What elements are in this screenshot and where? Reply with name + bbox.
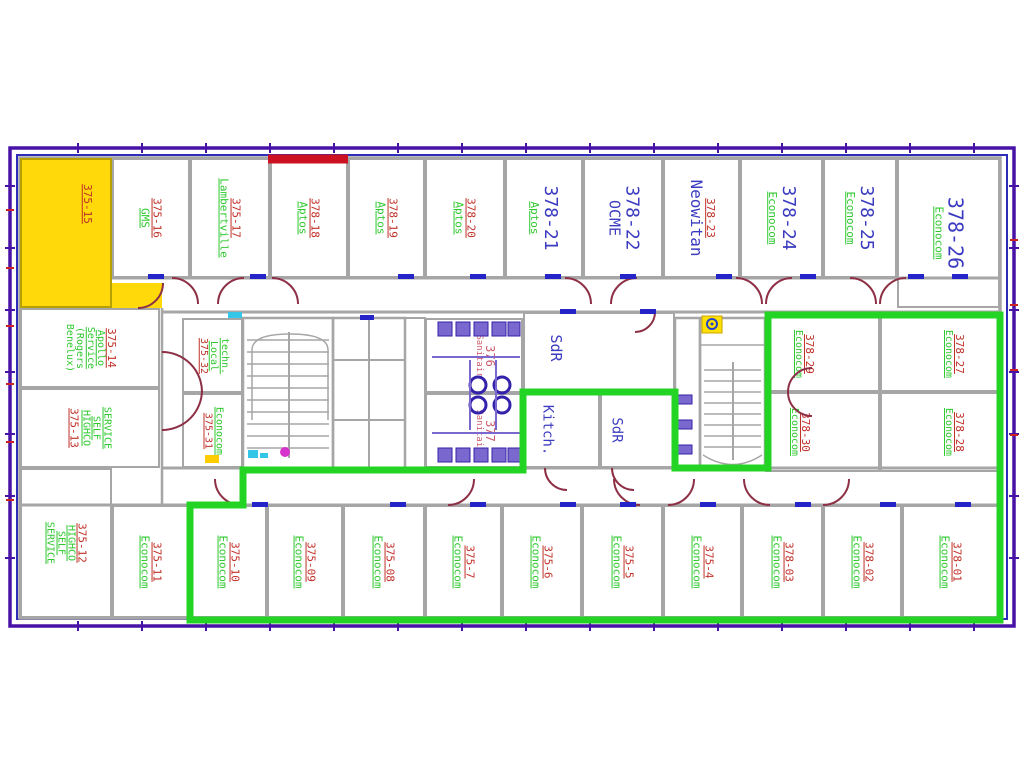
- room-label: 375-17Lambertville: [218, 178, 241, 257]
- room-378-19: 378-19Aptos: [348, 158, 425, 278]
- room-kitch: Kitch.: [523, 392, 600, 468]
- room-label: 378-20Aptos: [453, 198, 476, 238]
- room-label: 375-4Econocom: [691, 535, 714, 588]
- room-378-22: 378-22OCME: [583, 158, 663, 278]
- room-378-03: 378-03Econocom: [742, 505, 823, 618]
- room-378-26: 378-26Econocom: [897, 158, 1000, 308]
- room-375-15: 375-15: [20, 158, 112, 308]
- room-label: SdR: [609, 417, 624, 442]
- room-label: 375-12HIGHCOSELFSERVICE: [44, 522, 87, 564]
- room-375-16: 375-16GMS: [112, 158, 190, 278]
- room-375-5: 375-5Econocom: [582, 505, 663, 618]
- room-375-15b: [112, 283, 162, 308]
- room-label: 378-25Econocom: [845, 185, 875, 250]
- room-label: 375-08Econocom: [372, 535, 395, 588]
- room-sdr-2: SdR: [600, 392, 675, 468]
- room-label: 378-29Econocom: [793, 329, 815, 377]
- room-378-29: 378-29Econocom: [765, 315, 880, 392]
- room-label: 378-23Neowitan: [687, 179, 715, 256]
- room-label: 375-5Econocom: [611, 535, 634, 588]
- room-label: 378-21Aptos: [529, 185, 559, 250]
- room-label: 375-11Econocom: [139, 535, 162, 588]
- room-375-7: 375-7Econocom: [425, 505, 502, 618]
- room-label: 378-26Econocom: [932, 197, 965, 269]
- room-label: SdR: [547, 335, 563, 362]
- room-label: 375-15: [81, 184, 93, 224]
- room-label: 378-28Econocom: [943, 408, 965, 456]
- room-label: 375-7Econocom: [452, 535, 475, 588]
- room-label: 378-19Aptos: [375, 198, 398, 238]
- room-378-25: 378-25Econocom: [823, 158, 897, 278]
- room-378-18: 378-18Aptos: [270, 158, 348, 278]
- room-375-12: 375-12HIGHCOSELFSERVICE: [20, 468, 112, 618]
- room-label: 378-03Econocom: [771, 535, 794, 588]
- room-378-28: 378-28Econocom: [880, 392, 1000, 472]
- room-label: 378-27Econocom: [943, 329, 965, 377]
- rooms-layer: 375-15375-16GMS375-17Lambertville378-18A…: [0, 0, 1024, 768]
- room-label: techn.Local375-32: [197, 337, 229, 373]
- room-375-4: 375-4Econocom: [663, 505, 742, 618]
- room-375-17: 375-17Lambertville: [190, 158, 270, 278]
- room-378-21: 378-21Aptos: [505, 158, 583, 278]
- room-375-31: Econocom375-31: [182, 393, 243, 468]
- room-378-02: 378-02Econocom: [823, 505, 902, 618]
- room-label: 375-10Econocom: [217, 535, 240, 588]
- room-label: SERVICESELFHIGHCO375-13: [68, 407, 111, 449]
- room-377: 377Sanitair: [425, 393, 523, 468]
- room-label: 377Sanitair: [474, 409, 496, 452]
- room-378-27: 378-27Econocom: [880, 315, 1000, 392]
- room-label: 378-24Econocom: [766, 185, 796, 250]
- room-375-08: 375-08Econocom: [343, 505, 425, 618]
- room-label: 378-22OCME: [606, 185, 641, 250]
- room-375-32: techn.Local375-32: [182, 318, 243, 393]
- room-376: 376Sanitair: [425, 318, 523, 393]
- room-label: Kitch.: [540, 405, 555, 456]
- room-label: Econocom375-31: [202, 406, 223, 454]
- room-label: 375-14ApolloService(RogersBenelux): [63, 324, 117, 372]
- room-378-30: 378-30Econocom: [765, 392, 880, 472]
- room-375-10: 375-10Econocom: [190, 505, 267, 618]
- room-378-23: 378-23Neowitan: [663, 158, 740, 278]
- room-378-24: 378-24Econocom: [740, 158, 823, 278]
- floor-plan: 375-15375-16GMS375-17Lambertville378-18A…: [0, 0, 1024, 768]
- room-label: 378-18Aptos: [297, 198, 320, 238]
- room-378-01: 378-01Econocom: [902, 505, 1000, 618]
- room-375-09: 375-09Econocom: [267, 505, 343, 618]
- room-label: 378-02Econocom: [851, 535, 874, 588]
- room-375-6: 375-6Econocom: [502, 505, 582, 618]
- room-375-11: 375-11Econocom: [112, 505, 190, 618]
- room-label: 376Sanitair: [474, 334, 496, 377]
- room-375-14: 375-14ApolloService(RogersBenelux): [20, 308, 160, 388]
- room-label: 375-6Econocom: [530, 535, 553, 588]
- room-label: 375-16GMS: [139, 198, 162, 238]
- room-label: 375-09Econocom: [293, 535, 316, 588]
- room-375-13: SERVICESELFHIGHCO375-13: [20, 388, 160, 468]
- room-378-20: 378-20Aptos: [425, 158, 505, 278]
- room-label: 378-30Econocom: [789, 408, 811, 456]
- room-sdr-1: SdR: [523, 312, 675, 392]
- room-label: 378-01Econocom: [939, 535, 962, 588]
